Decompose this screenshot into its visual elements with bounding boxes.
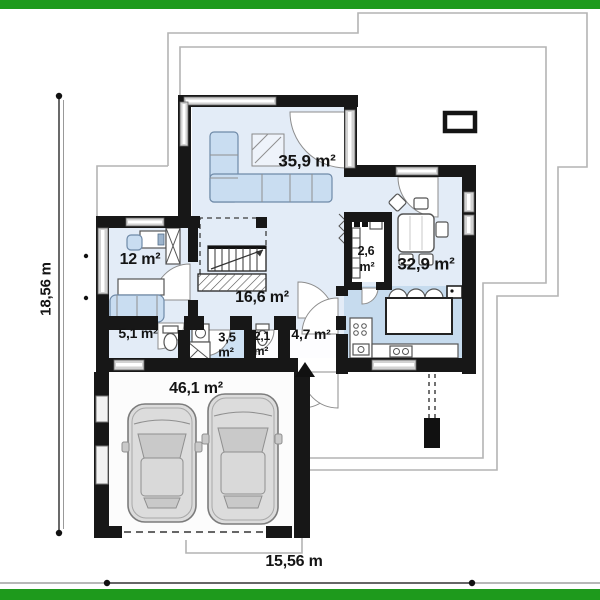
chimney — [445, 113, 475, 131]
room-label-dining: 32,9 m² — [397, 256, 454, 273]
wall-axis-dots — [84, 254, 88, 300]
room-label-wc-line2: m² — [254, 345, 268, 357]
room-label-pantry-line1: 2,6 — [358, 245, 375, 258]
bottom-green-bar — [0, 589, 600, 600]
room-label-pantry-line2: m² — [360, 261, 375, 274]
dimension-label-bottom: 15,56 m — [265, 554, 322, 570]
dimension-label-left: 18,56 m — [39, 262, 54, 316]
room-label-wc-line1: 2,1 — [254, 330, 270, 342]
room-label-living: 35,9 m² — [278, 153, 335, 170]
room-label-entry: 4,7 m² — [291, 327, 330, 341]
floor-plan-drawing — [0, 0, 600, 600]
dining-table — [398, 214, 434, 252]
room-label-garage: 46,1 m² — [169, 381, 223, 397]
room-label-bath-line1: 3,5 — [218, 331, 235, 344]
car-2 — [202, 394, 282, 524]
outdoor-chimney — [424, 374, 440, 448]
room-label-hall: 16,6 m² — [235, 290, 289, 306]
shelf — [118, 279, 164, 295]
room-label-bath-line2: m² — [218, 346, 234, 359]
dimension-line-left — [56, 93, 64, 536]
dimension-line-bottom — [0, 580, 600, 586]
kitchen-island — [386, 298, 452, 334]
car-1 — [122, 404, 202, 522]
floor-plan-page: 35,9 m² 32,9 m² 12 m² 16,6 m² 5,1 m² 3,5… — [0, 0, 600, 600]
floor-drain — [447, 286, 462, 298]
room-label-laundry: 5,1 m² — [118, 326, 157, 340]
kitchen-counter — [372, 344, 458, 358]
desk-chair — [127, 235, 142, 250]
room-label-office: 12 m² — [120, 252, 161, 268]
